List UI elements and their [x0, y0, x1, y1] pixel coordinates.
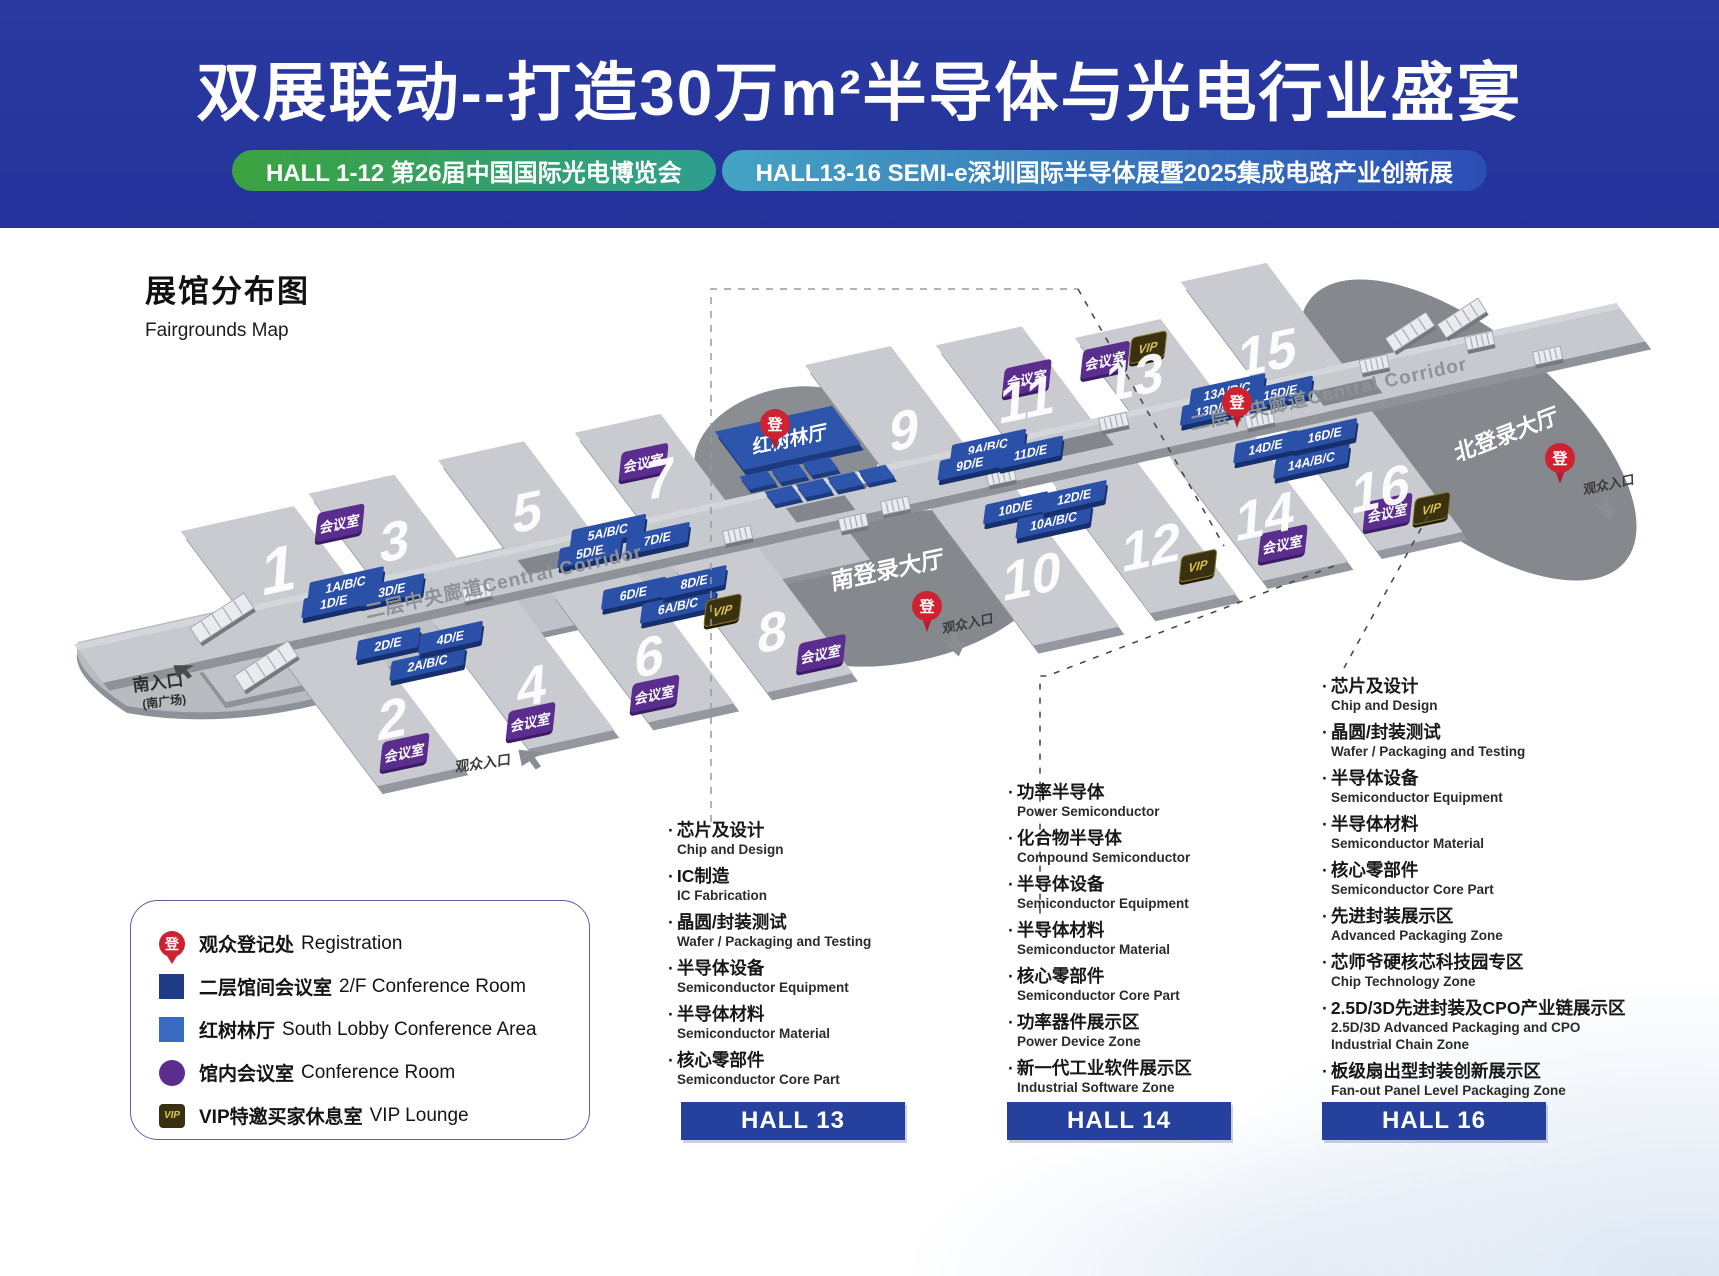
category-en: Semiconductor Material	[677, 1025, 988, 1042]
hall-3-number: 3	[378, 506, 412, 575]
category-item: 板级扇出型封装创新展示区Fan-out Panel Level Packagin…	[1322, 1061, 1622, 1099]
category-zh: 芯师爷硬核芯科技园专区	[1322, 952, 1622, 973]
category-en: Advanced Packaging Zone	[1331, 927, 1622, 944]
hall-4-number: 4	[515, 651, 549, 720]
legend-label-en: 2/F Conference Room	[339, 976, 526, 998]
category-item: 核心零部件Semiconductor Core Part	[668, 1050, 988, 1088]
navy-icon	[159, 974, 189, 999]
category-item: 晶圆/封装测试Wafer / Packaging and Testing	[668, 912, 988, 950]
legend-label-zh: 红树林厅	[199, 1016, 275, 1043]
purple-icon	[159, 1060, 189, 1086]
category-zh: 板级扇出型封装创新展示区	[1322, 1061, 1622, 1082]
hall-section-hall-13: 芯片及设计Chip and DesignIC制造IC Fabrication晶圆…	[668, 820, 988, 1096]
hall-section-hall-16: 芯片及设计Chip and Design晶圆/封装测试Wafer / Packa…	[1322, 676, 1622, 1107]
category-item: 芯师爷硬核芯科技园专区Chip Technology Zone	[1322, 952, 1622, 990]
category-zh: 先进封装展示区	[1322, 906, 1622, 927]
category-en: Power Semiconductor	[1017, 803, 1338, 820]
category-en: Chip and Design	[1331, 697, 1622, 714]
category-en: Chip Technology Zone	[1331, 973, 1622, 990]
category-zh: 芯片及设计	[1322, 676, 1622, 697]
category-item: 半导体设备Semiconductor Equipment	[1322, 768, 1622, 806]
category-en: Semiconductor Equipment	[1017, 895, 1338, 912]
category-en: Wafer / Packaging and Testing	[677, 933, 988, 950]
legend-item-vip: VIPVIP特邀买家休息室VIP Lounge	[159, 1094, 589, 1137]
category-zh: 2.5D/3D先进封装及CPO产业链展示区	[1322, 998, 1622, 1019]
legend-label-zh: 观众登记处	[199, 930, 294, 957]
legend-label-en: Conference Room	[301, 1062, 455, 1084]
category-item: 芯片及设计Chip and Design	[668, 820, 988, 858]
category-zh: 功率半导体	[1008, 782, 1338, 803]
category-item: 半导体设备Semiconductor Equipment	[1008, 874, 1338, 912]
visitor-entrance-label-south: 观众入口	[455, 751, 511, 775]
category-zh: 半导体设备	[1008, 874, 1338, 895]
blue-icon	[159, 1017, 189, 1042]
legend-label-en: VIP Lounge	[370, 1105, 469, 1127]
legend-item-blue: 红树林厅South Lobby Conference Area	[159, 1008, 589, 1051]
hall-7-number: 7	[643, 444, 677, 513]
category-en: Semiconductor Material	[1331, 835, 1622, 852]
category-item: 功率器件展示区Power Device Zone	[1008, 1012, 1338, 1050]
category-zh: 化合物半导体	[1008, 828, 1338, 849]
category-en: Semiconductor Core Part	[677, 1071, 988, 1088]
category-zh: 核心零部件	[668, 1050, 988, 1071]
hall-5-number: 5	[511, 477, 545, 546]
vip-icon: VIP	[159, 1104, 189, 1128]
legend-item-navy: 二层馆间会议室2/F Conference Room	[159, 965, 589, 1008]
category-zh: 核心零部件	[1322, 860, 1622, 881]
fairgrounds-poster: 双展联动--打造30万m²半导体与光电行业盛宴 HALL 1-12 第26届中国…	[0, 0, 1719, 1276]
category-zh: 半导体材料	[1322, 814, 1622, 835]
category-en: Semiconductor Equipment	[677, 979, 988, 996]
svg-text:登: 登	[1228, 394, 1245, 412]
legend-item-pin: 登观众登记处Registration	[159, 922, 589, 965]
legend-label-en: South Lobby Conference Area	[282, 1019, 537, 1041]
hall-11-number: 11	[997, 362, 1057, 437]
legend-box: 登观众登记处Registration二层馆间会议室2/F Conference …	[130, 900, 590, 1140]
category-item: 半导体设备Semiconductor Equipment	[668, 958, 988, 996]
category-item: IC制造IC Fabrication	[668, 866, 988, 904]
svg-text:登: 登	[1551, 450, 1568, 468]
pin-icon: 登	[159, 931, 189, 957]
svg-text:登: 登	[766, 416, 783, 434]
category-zh: 晶圆/封装测试	[1322, 722, 1622, 743]
category-zh: 功率器件展示区	[1008, 1012, 1338, 1033]
category-item: 化合物半导体Compound Semiconductor	[1008, 828, 1338, 866]
category-en: 2.5D/3D Advanced Packaging and CPO Indus…	[1331, 1019, 1622, 1053]
category-en: Chip and Design	[677, 841, 988, 858]
category-en: Industrial Software Zone	[1017, 1079, 1338, 1096]
legend-label-zh: 馆内会议室	[199, 1059, 294, 1086]
category-item: 核心零部件Semiconductor Core Part	[1008, 966, 1338, 1004]
category-zh: 核心零部件	[1008, 966, 1338, 987]
category-zh: 新一代工业软件展示区	[1008, 1058, 1338, 1079]
category-item: 核心零部件Semiconductor Core Part	[1322, 860, 1622, 898]
category-item: 功率半导体Power Semiconductor	[1008, 782, 1338, 820]
category-zh: 半导体设备	[668, 958, 988, 979]
hall-2-number: 2	[376, 684, 410, 753]
hall-banner-hall-16: HALL 16	[1322, 1102, 1546, 1140]
hall-6-number: 6	[633, 621, 667, 690]
category-en: Semiconductor Material	[1017, 941, 1338, 958]
category-zh: 半导体材料	[1008, 920, 1338, 941]
category-zh: 半导体设备	[1322, 768, 1622, 789]
legend-label-zh: 二层馆间会议室	[199, 973, 332, 1000]
category-en: Fan-out Panel Level Packaging Zone	[1331, 1082, 1622, 1099]
category-en: Wafer / Packaging and Testing	[1331, 743, 1622, 760]
hall-9-number: 9	[887, 395, 921, 464]
category-zh: 半导体材料	[668, 1004, 988, 1025]
svg-text:登: 登	[918, 598, 935, 616]
hall-8-number: 8	[755, 597, 789, 666]
hall-section-hall-14: 功率半导体Power Semiconductor化合物半导体Compound S…	[1008, 782, 1338, 1104]
category-item: 半导体材料Semiconductor Material	[1008, 920, 1338, 958]
category-item: 2.5D/3D先进封装及CPO产业链展示区2.5D/3D Advanced Pa…	[1322, 998, 1622, 1053]
hall-1-number: 1	[259, 529, 299, 611]
category-item: 半导体材料Semiconductor Material	[1322, 814, 1622, 852]
hall-banner-hall-14: HALL 14	[1007, 1102, 1231, 1140]
category-zh: 芯片及设计	[668, 820, 988, 841]
category-item: 半导体材料Semiconductor Material	[668, 1004, 988, 1042]
category-item: 新一代工业软件展示区Industrial Software Zone	[1008, 1058, 1338, 1096]
category-item: 芯片及设计Chip and Design	[1322, 676, 1622, 714]
hall-banner-hall-13: HALL 13	[681, 1102, 905, 1140]
legend-item-purple: 馆内会议室Conference Room	[159, 1051, 589, 1094]
legend-label-zh: VIP特邀买家休息室	[199, 1102, 363, 1129]
category-en: Compound Semiconductor	[1017, 849, 1338, 866]
category-item: 先进封装展示区Advanced Packaging Zone	[1322, 906, 1622, 944]
legend-label-en: Registration	[301, 933, 402, 955]
category-zh: 晶圆/封装测试	[668, 912, 988, 933]
category-en: Power Device Zone	[1017, 1033, 1338, 1050]
category-zh: IC制造	[668, 866, 988, 887]
category-en: IC Fabrication	[677, 887, 988, 904]
category-en: Semiconductor Core Part	[1331, 881, 1622, 898]
category-en: Semiconductor Core Part	[1017, 987, 1338, 1004]
category-en: Semiconductor Equipment	[1331, 789, 1622, 806]
category-item: 晶圆/封装测试Wafer / Packaging and Testing	[1322, 722, 1622, 760]
